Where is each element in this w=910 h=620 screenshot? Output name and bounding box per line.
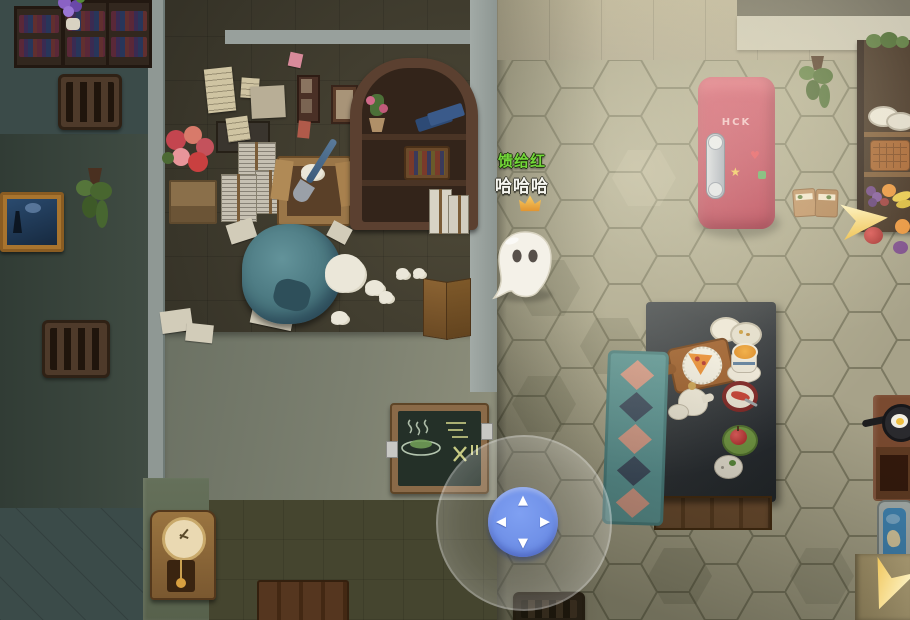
fridge-handle[interactable] (706, 133, 725, 199)
door-mat (257, 580, 349, 620)
wall-frame (297, 75, 320, 123)
argyle-rug (602, 350, 669, 526)
loose-plum (893, 241, 908, 254)
pinned-note (225, 116, 250, 143)
dessert-cup (726, 341, 760, 383)
dpad-right-icon: ▶ (540, 516, 550, 529)
shelf-bread (870, 140, 910, 171)
shelf-plant (864, 32, 910, 58)
shelf-plates (868, 104, 910, 132)
teacup (668, 404, 690, 419)
fridge-brand-label: HCK (698, 117, 775, 128)
loose-apple (864, 227, 883, 244)
board-clip (481, 423, 493, 440)
food-shelf (857, 40, 910, 232)
fish-plate (722, 381, 760, 415)
wall-vent (42, 320, 110, 378)
pinned-note (204, 67, 236, 114)
bookcase (106, 0, 152, 68)
hallway-floor-bottom (0, 508, 150, 620)
stuffing-fluff (396, 268, 409, 279)
star-magnet-icon: ★ (730, 165, 741, 179)
table-bench (654, 496, 772, 530)
pendulum-clock (150, 510, 216, 600)
player-name-label: 馈给红 (422, 150, 622, 171)
dpad-left-icon: ◀ (496, 516, 506, 529)
wooden-panel-screen (421, 276, 473, 338)
stuffing-fluff (379, 291, 393, 303)
stuffing-fluff (331, 311, 348, 324)
sandwich (790, 178, 841, 225)
pinned-note (250, 85, 286, 119)
frying-pan[interactable] (858, 404, 910, 440)
peony-flowers (162, 126, 216, 186)
blue-books (416, 106, 466, 136)
hanging-plant (799, 56, 837, 112)
chat-message: 哈哈哈 (422, 172, 622, 197)
clock-face (162, 517, 206, 561)
shelf-flower-pot (362, 94, 392, 134)
dpad-down-icon: ▼ (518, 537, 528, 550)
game-scene: HCK ♥ ★ (0, 0, 910, 620)
wall-strip-storage-top (225, 30, 470, 44)
apple-plate (722, 425, 756, 455)
ghost-icon (491, 228, 559, 302)
stuffing-fluff (413, 268, 425, 278)
kitchen-wall-top-strip (737, 0, 910, 16)
loose-orange (895, 219, 910, 234)
fridge[interactable]: HCK ♥ ★ (698, 77, 775, 229)
shelf-board (864, 132, 910, 137)
wall-strip-left (148, 0, 165, 508)
fish-in-sink (886, 529, 902, 548)
joystick-dpad[interactable]: ▲ ▶ ▼ ◀ (488, 487, 558, 557)
green-magnet-icon (758, 171, 766, 179)
shelf-fruits (866, 180, 910, 214)
flower-planter-box (169, 180, 217, 224)
paper-stack (448, 195, 469, 234)
board-clip (386, 441, 398, 458)
shelf-board (864, 172, 910, 177)
shovel (286, 134, 332, 210)
stuffing-fluff (325, 254, 365, 292)
small-plate (714, 455, 742, 479)
scattered-paper (185, 323, 214, 344)
heart-magnet-icon: ♥ (750, 149, 760, 162)
starry-painting (0, 192, 64, 252)
dpad-up-icon: ▲ (518, 494, 528, 507)
pendulum-window (167, 560, 195, 592)
lower-cabinet (876, 447, 910, 499)
newspaper-bundle (221, 174, 257, 222)
floor-vent (58, 74, 122, 130)
hanging-plant (74, 168, 118, 240)
bean-bag-patch (271, 276, 313, 314)
purple-flower-vase (56, 0, 90, 32)
